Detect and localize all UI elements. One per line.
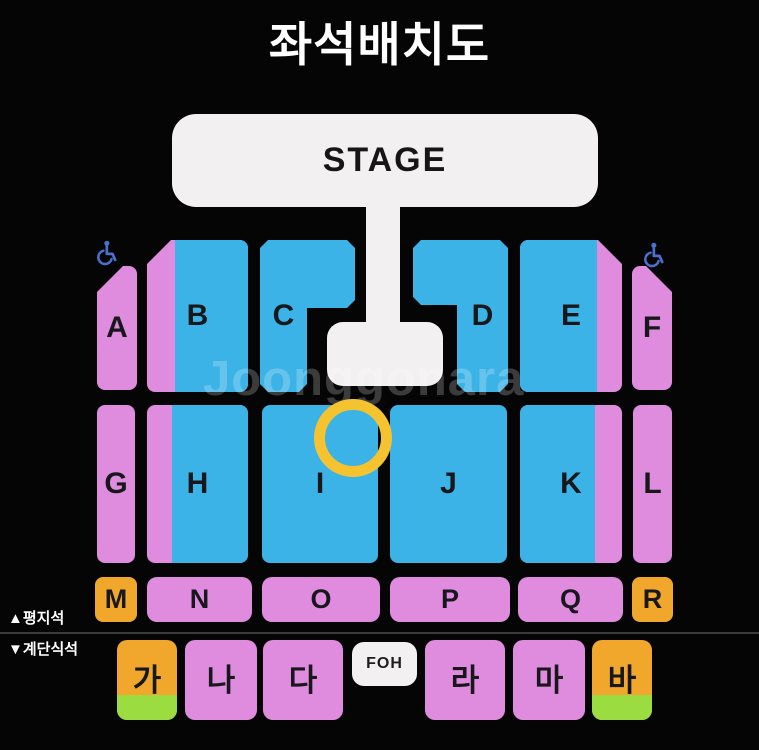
flat-stair-divider-line xyxy=(0,632,759,634)
section-l[interactable]: L xyxy=(633,405,672,563)
foh-booth: FOH xyxy=(352,642,417,686)
section-label: E xyxy=(561,301,581,331)
section-ba-green-area xyxy=(592,695,652,720)
stage: STAGE xyxy=(172,114,598,207)
section-ga-green-area xyxy=(117,695,177,720)
section-label: H xyxy=(187,469,209,499)
section-k-blue-area xyxy=(520,405,595,563)
section-h[interactable]: H xyxy=(147,405,248,563)
wheelchair-icon xyxy=(639,241,666,268)
section-h-blue-area xyxy=(172,405,248,563)
section-ba[interactable]: 바 xyxy=(592,640,652,720)
legend-flat-seats: ▲평지석 xyxy=(8,607,64,628)
section-ra[interactable]: 라 xyxy=(425,640,505,720)
section-label: P xyxy=(441,586,459,613)
section-label: K xyxy=(560,469,582,499)
section-g[interactable]: G xyxy=(97,405,135,563)
section-n[interactable]: N xyxy=(147,577,252,622)
section-da[interactable]: 다 xyxy=(263,640,343,720)
wheelchair-icon xyxy=(92,239,119,266)
section-e[interactable]: E xyxy=(520,240,622,392)
section-label: L xyxy=(643,469,661,499)
section-label: I xyxy=(316,469,324,499)
section-o[interactable]: O xyxy=(262,577,380,622)
section-j[interactable]: J xyxy=(390,405,507,563)
section-label: J xyxy=(440,469,457,499)
section-m[interactable]: M xyxy=(95,577,137,622)
section-label: B xyxy=(187,301,209,331)
section-label: N xyxy=(190,586,210,613)
section-label: 바 xyxy=(608,665,637,696)
joonggonara-watermark: Joonggonara xyxy=(203,351,524,407)
section-ma[interactable]: 마 xyxy=(513,640,585,720)
highlight-ring xyxy=(314,399,392,477)
section-k[interactable]: K xyxy=(520,405,622,563)
section-r[interactable]: R xyxy=(632,577,673,622)
section-label: M xyxy=(105,586,128,613)
stage-label: STAGE xyxy=(323,141,448,180)
foh-label: FOH xyxy=(366,655,403,673)
section-label: 가 xyxy=(133,665,162,696)
section-label: 다 xyxy=(289,665,318,696)
section-label: 라 xyxy=(451,665,480,696)
section-label: F xyxy=(643,313,661,343)
seat-map: 좌석배치도 STAGE A B C D E F G H xyxy=(0,0,759,750)
section-na[interactable]: 나 xyxy=(185,640,257,720)
section-label: O xyxy=(310,586,331,613)
section-p[interactable]: P xyxy=(390,577,510,622)
section-label: 마 xyxy=(535,665,564,696)
section-e-blue-area xyxy=(520,240,597,392)
section-q[interactable]: Q xyxy=(518,577,623,622)
legend-stair-seats: ▼계단식석 xyxy=(8,638,78,659)
stage-runway xyxy=(366,200,400,328)
section-a[interactable]: A xyxy=(97,266,137,390)
page-title: 좌석배치도 xyxy=(0,6,759,75)
section-ga[interactable]: 가 xyxy=(117,640,177,720)
section-label: G xyxy=(104,469,127,499)
section-label: R xyxy=(643,586,663,613)
section-label: Q xyxy=(560,586,581,613)
section-label: A xyxy=(106,313,128,343)
section-label: 나 xyxy=(207,665,236,696)
section-f[interactable]: F xyxy=(632,266,672,390)
